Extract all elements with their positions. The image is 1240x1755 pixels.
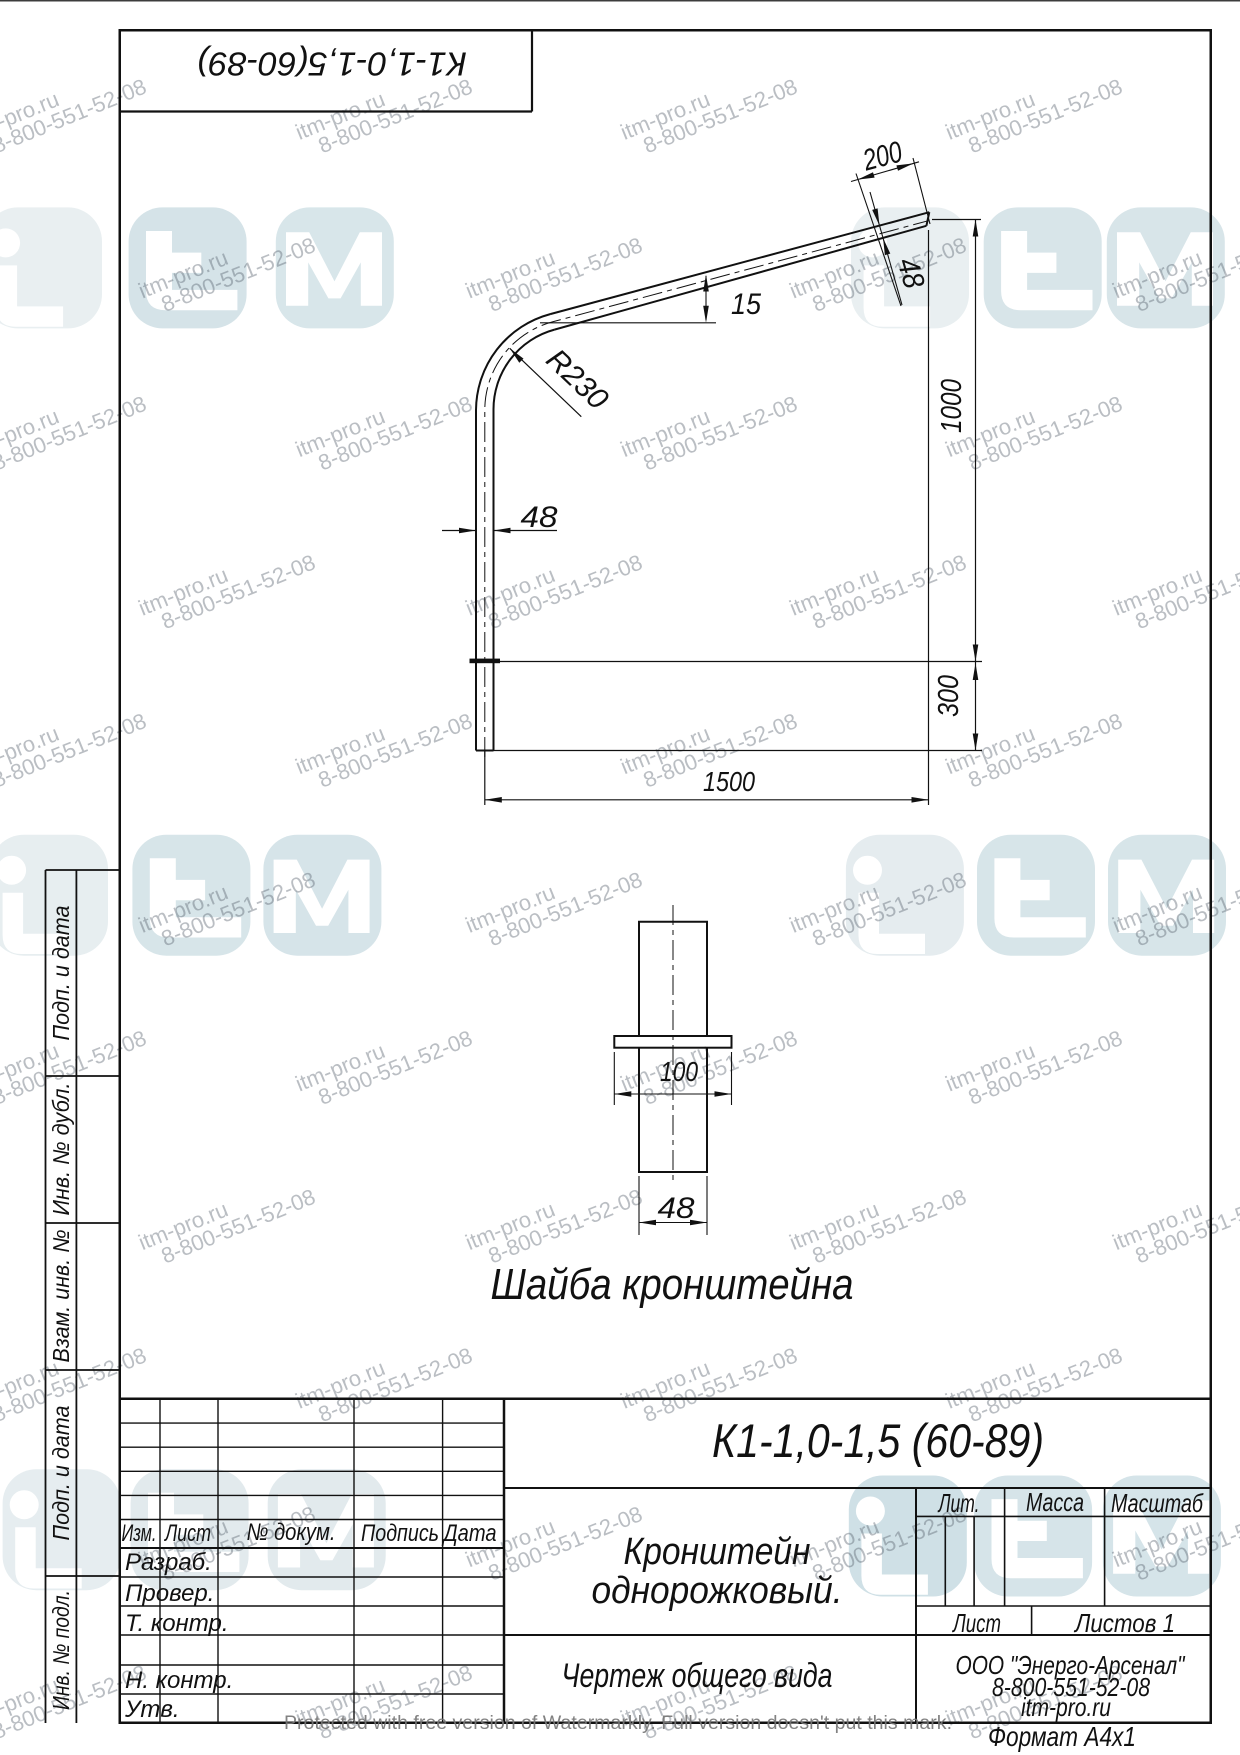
svg-text:1500: 1500 [703,766,755,797]
svg-text:48: 48 [658,1192,695,1225]
svg-text:Дата: Дата [441,1520,497,1547]
svg-text:Разраб.: Разраб. [125,1549,212,1576]
svg-text:Листов 1: Листов 1 [1073,1608,1175,1638]
svg-text:Изм.: Изм. [122,1520,157,1547]
svg-text:Инв. № подл.: Инв. № подл. [48,1590,74,1710]
svg-text:100: 100 [660,1056,698,1087]
svg-text:Лист: Лист [164,1520,211,1547]
svg-text:itm-pro.ru: itm-pro.ru [1021,1692,1111,1722]
svg-text:Провер.: Провер. [125,1580,214,1607]
svg-text:Подп. и дата: Подп. и дата [48,906,74,1041]
svg-text:1000: 1000 [936,379,968,433]
svg-text:Кронштейн: Кронштейн [624,1531,811,1573]
svg-text:№ докум.: № докум. [247,1519,336,1546]
svg-text:R230: R230 [540,343,615,417]
svg-text:Лист: Лист [952,1608,1001,1638]
svg-text:Лит.: Лит. [937,1488,979,1518]
svg-text:однорожковый.: однорожковый. [592,1570,843,1612]
svg-text:Взам. инв. №: Взам. инв. № [48,1229,74,1362]
svg-text:Чертеж общего вида: Чертеж общего вида [562,1657,833,1695]
svg-text:15: 15 [731,288,761,321]
svg-text:Protected with free version of: Protected with free version of Watermark… [284,1713,952,1734]
svg-text:Инв. № дубл.: Инв. № дубл. [48,1083,74,1216]
svg-text:Подпись: Подпись [361,1520,439,1547]
svg-text:Утв.: Утв. [124,1696,180,1723]
svg-text:Н. контр.: Н. контр. [125,1667,233,1694]
svg-text:300: 300 [933,675,965,717]
svg-text:К1-1,0-1,5(60-89): К1-1,0-1,5(60-89) [197,46,467,83]
svg-text:200: 200 [859,135,906,177]
svg-text:Шайба кронштейна: Шайба кронштейна [491,1260,854,1309]
svg-text:Масса: Масса [1026,1487,1084,1517]
svg-text:Т. контр.: Т. контр. [125,1610,229,1637]
svg-text:Подп. и дата: Подп. и дата [48,1406,74,1541]
svg-text:Формат А4х1: Формат А4х1 [988,1721,1136,1752]
svg-text:К1-1,0-1,5 (60-89): К1-1,0-1,5 (60-89) [712,1414,1044,1467]
svg-text:Масштаб: Масштаб [1111,1488,1204,1518]
svg-text:48: 48 [521,501,558,534]
